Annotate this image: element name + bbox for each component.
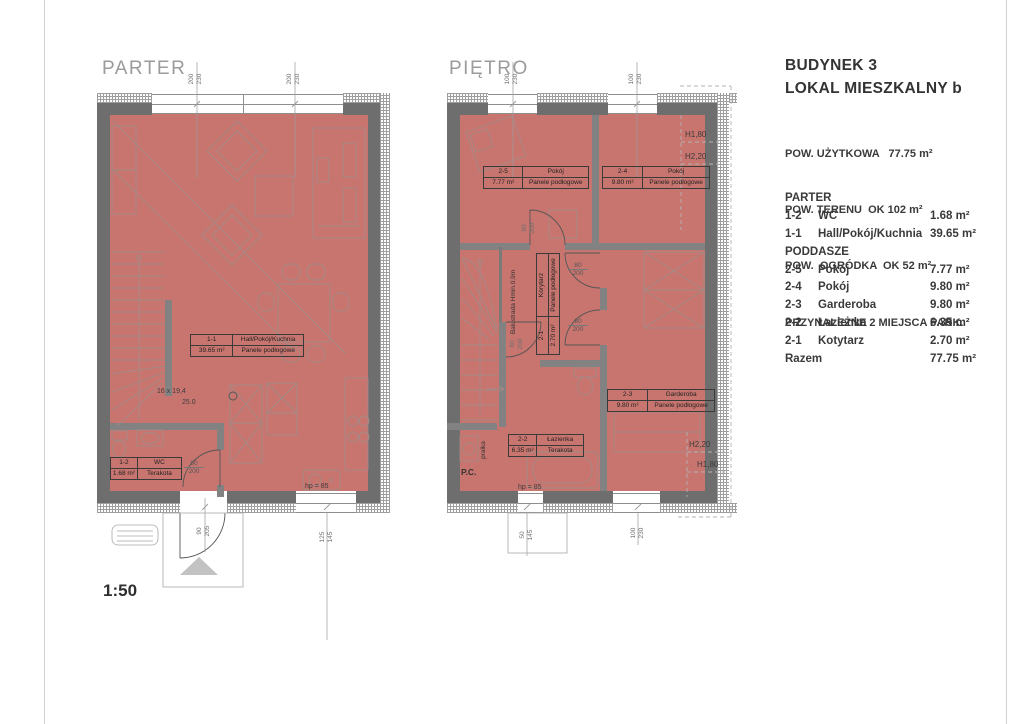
dim-window: 200230 xyxy=(286,62,302,96)
parter-hatch xyxy=(97,503,180,513)
row-id: 1-1 xyxy=(785,228,818,246)
dim-w: 200 xyxy=(188,62,196,96)
row-id: 2-5 xyxy=(785,264,818,282)
row-id: PODDASZE xyxy=(785,246,818,264)
room-name: Garderoba xyxy=(647,390,714,400)
room-name: Korytarz xyxy=(537,254,548,317)
room-id: 2-5 xyxy=(484,167,522,177)
legend-unit: LOKAL MIESZKALNY b xyxy=(785,80,962,98)
pralka-text: pralka xyxy=(480,441,487,459)
sill-height-label: hp = 85 xyxy=(305,483,329,490)
roof-height-label: H1,80 xyxy=(697,460,718,469)
parter-iwall xyxy=(110,423,224,430)
room-area: 2.70 m² xyxy=(548,317,560,354)
pietro-iwall xyxy=(447,423,497,430)
room-name: Łazienka xyxy=(536,435,583,445)
parter-wall xyxy=(110,103,152,115)
row-area: 7.77 m² xyxy=(930,264,1017,282)
row-area: 9.80 m² xyxy=(930,281,1017,299)
stairs-label-2: 25.0 xyxy=(182,399,196,406)
roof-height-label: H2,20 xyxy=(685,152,706,161)
pietro-iwall xyxy=(540,360,600,367)
dim-w: 100 xyxy=(504,62,512,96)
row-id: 2-3 xyxy=(785,299,818,317)
parter-hatch xyxy=(97,93,152,103)
scale-label: 1:50 xyxy=(103,581,137,601)
row-area: 39.65 m² xyxy=(930,228,1017,246)
pietro-wall xyxy=(537,103,608,115)
dormer-outline xyxy=(508,513,567,553)
room-table-hall: 1-1 Hall/Pokój/Kuchnia 39.65 m² Panele p… xyxy=(190,334,304,357)
parter-wall xyxy=(227,491,296,503)
room-id: 2-1 xyxy=(537,317,548,354)
row-name: Łazienka xyxy=(818,317,930,335)
room-finish: Panele podłogowe xyxy=(647,400,714,411)
row-area: 9.80 m² xyxy=(930,299,1017,317)
dim-entry-door: 90205 xyxy=(196,514,212,548)
dim-h: 230 xyxy=(294,62,302,96)
pietro-window-top xyxy=(608,94,657,114)
dim-h: 145 xyxy=(327,520,335,554)
room-id: 2-2 xyxy=(509,435,536,445)
room-finish: Panele podłogowe xyxy=(522,177,588,188)
pietro-hatch xyxy=(543,503,613,513)
row-id: 2-4 xyxy=(785,281,818,299)
parter-floor xyxy=(110,113,368,491)
balustrade-height: Hmin.0,9m xyxy=(510,270,517,301)
row-name: Hall/Pokój/Kuchnia xyxy=(818,228,930,246)
row-id: 2-1 xyxy=(785,335,818,353)
parter-hatch xyxy=(380,93,390,513)
dim-h: 230 xyxy=(636,62,644,96)
parter-window-top xyxy=(152,94,343,114)
dim-w: 80 xyxy=(568,262,588,270)
room-area: 1.68 m² xyxy=(111,468,137,479)
dim-h: 200 xyxy=(184,468,204,475)
row-area: 2.70 m² xyxy=(930,335,1017,353)
entrance-arrow-icon xyxy=(180,557,218,575)
row-area xyxy=(930,192,1017,210)
parter-iwall xyxy=(217,430,224,450)
dim-wc-door: 80200 xyxy=(184,460,204,475)
dim-w: 80 xyxy=(521,212,529,244)
room-table-wc: 1-2 WC 1.68 m² Terakota xyxy=(110,457,182,480)
pietro-hatch xyxy=(447,93,488,103)
row-name xyxy=(818,353,930,371)
dim-w: 200 xyxy=(286,62,294,96)
row-name: Garderoba xyxy=(818,299,930,317)
dim-w: 80 xyxy=(184,460,204,468)
room-name: Pokój xyxy=(522,167,588,177)
room-finish: Terakota xyxy=(137,468,181,479)
row-area: 1.68 m² xyxy=(930,210,1017,228)
dim-h: 200 xyxy=(517,328,525,360)
dim-window: 100230 xyxy=(630,516,646,550)
room-id: 1-1 xyxy=(191,335,232,345)
washer-label: pralka xyxy=(480,428,489,472)
pietro-hatch xyxy=(660,503,737,513)
pietro-iwall xyxy=(460,243,530,250)
row-name: WC xyxy=(818,210,930,228)
row-name xyxy=(818,192,930,210)
pietro-iwall xyxy=(499,322,506,427)
pietro-iwall xyxy=(592,115,599,247)
parter-iwall xyxy=(165,300,172,396)
roof-height-label: H1,80 xyxy=(685,130,706,139)
row-name: Pokój xyxy=(818,264,930,282)
row-area: 77.75 m² xyxy=(930,353,1017,371)
doormat-icon xyxy=(112,525,158,545)
window-mullion xyxy=(243,94,244,114)
dim-window: 100230 xyxy=(628,62,644,96)
dim-w: 50 xyxy=(519,518,527,552)
dim-door: 80200 xyxy=(568,318,588,333)
dim-w: 80 xyxy=(568,318,588,326)
room-area: 9.80 m² xyxy=(608,400,647,411)
row-name xyxy=(818,246,930,264)
room-table-2-1: 2-1 Korytarz 2.70 m² Panele podłogowe xyxy=(536,253,558,353)
dim-h: 200 xyxy=(568,270,588,277)
dim-w: 80 xyxy=(509,328,517,360)
dim-h: 200 xyxy=(529,212,537,244)
room-area: 6.35 m² xyxy=(509,445,536,456)
pietro-hatch xyxy=(447,503,518,513)
dim-window: 200230 xyxy=(188,62,204,96)
pietro-window-top xyxy=(488,94,537,114)
parter-wall-left xyxy=(97,93,110,513)
dim-door: 80200 xyxy=(521,212,537,244)
pietro-iwall xyxy=(600,288,607,310)
dim-w: 100 xyxy=(628,62,636,96)
room-name: Hall/Pokój/Kuchnia xyxy=(232,335,303,345)
room-finish: Panele podłogowe xyxy=(548,254,560,317)
dim-window: 50145 xyxy=(519,518,535,552)
room-table-2-5: 2-5 Pokój 7.77 m² Panele podłogowe xyxy=(483,166,589,189)
dim-w: 90 xyxy=(196,514,204,548)
dim-h: 230 xyxy=(512,62,520,96)
sheet-border-left xyxy=(44,0,45,724)
parter-hatch xyxy=(227,503,296,513)
parter-window-bottom xyxy=(296,493,356,513)
room-area: 7.77 m² xyxy=(484,177,522,188)
spec-usable-area: POW. UŻYTKOWA 77.75 m² xyxy=(785,145,963,164)
room-name: Pokój xyxy=(642,167,709,177)
pietro-wall xyxy=(460,491,518,503)
stairs-label-1: 16 x 19,4 xyxy=(157,388,186,395)
pietro-iwall xyxy=(565,243,705,250)
dim-h: 230 xyxy=(196,62,204,96)
pietro-wall xyxy=(543,491,613,503)
row-id: 1-2 xyxy=(785,210,818,228)
room-id: 1-2 xyxy=(111,458,137,468)
room-name: WC xyxy=(137,458,181,468)
room-area: 39.65 m² xyxy=(191,345,232,356)
parter-wall xyxy=(356,491,368,503)
pietro-window-bottom xyxy=(518,493,543,513)
row-name: Kotytarz xyxy=(818,335,930,353)
room-table-2-4: 2-4 Pokój 9.80 m² Panele podłogowe xyxy=(602,166,710,189)
dim-w: 100 xyxy=(630,516,638,550)
legend-room-list: PARTER 1-2WC1.68 m² 1-1Hall/Pokój/Kuchni… xyxy=(785,192,1017,371)
roof-height-label: H2,20 xyxy=(689,440,710,449)
room-finish: Terakota xyxy=(536,445,583,456)
row-id: 2-2 xyxy=(785,317,818,335)
row-name: Pokój xyxy=(818,281,930,299)
balustrade-line xyxy=(499,247,502,322)
pietro-window-bottom xyxy=(613,493,660,513)
pietro-wall xyxy=(657,103,705,115)
row-area xyxy=(930,246,1017,264)
pietro-wall xyxy=(460,103,488,115)
parter-hatch xyxy=(356,503,390,513)
pietro-iwall xyxy=(600,345,607,491)
pietro-hatch xyxy=(537,93,608,103)
parter-title: PARTER xyxy=(102,58,186,80)
room-area: 9.80 m² xyxy=(603,177,642,188)
dim-h: 200 xyxy=(568,326,588,333)
parter-wall xyxy=(110,491,180,503)
room-id: 2-3 xyxy=(608,390,647,400)
dim-h: 145 xyxy=(527,518,535,552)
row-id: PARTER xyxy=(785,192,818,210)
room-finish: Panele podłogowe xyxy=(642,177,709,188)
row-id: Razem xyxy=(785,353,818,371)
pietro-wall-left xyxy=(447,93,460,513)
floorplan-sheet: PARTER PIĘTRO xyxy=(0,0,1024,724)
dim-door: 80200 xyxy=(509,328,525,360)
legend-building: BUDYNEK 3 xyxy=(785,57,877,75)
dim-window: 125145 xyxy=(319,520,335,554)
dim-door: 80200 xyxy=(568,262,588,277)
outdoor-elements xyxy=(112,513,567,587)
dim-w: 125 xyxy=(319,520,327,554)
room-table-2-3: 2-3 Garderoba 9.80 m² Panele podłogowe xyxy=(607,389,715,412)
parter-wall xyxy=(343,103,368,115)
boiler-label: P.C. xyxy=(461,467,476,477)
dim-h: 205 xyxy=(204,514,212,548)
sill-height-label: hp = 85 xyxy=(518,484,542,491)
room-table-2-1-inner: 2-1 Korytarz 2.70 m² Panele podłogowe xyxy=(536,253,560,355)
pietro-wall xyxy=(660,491,705,503)
row-area: 6.35 m² xyxy=(930,317,1017,335)
pietro-hatch xyxy=(717,93,729,513)
room-id: 2-4 xyxy=(603,167,642,177)
dim-h: 230 xyxy=(638,516,646,550)
room-finish: Panele podłogowe xyxy=(232,345,303,356)
parter-wall-right xyxy=(368,103,380,503)
parter-iwall xyxy=(217,485,224,497)
dim-window: 100230 xyxy=(504,62,520,96)
room-table-2-2: 2-2 Łazienka 6.35 m² Terakota xyxy=(508,434,584,457)
